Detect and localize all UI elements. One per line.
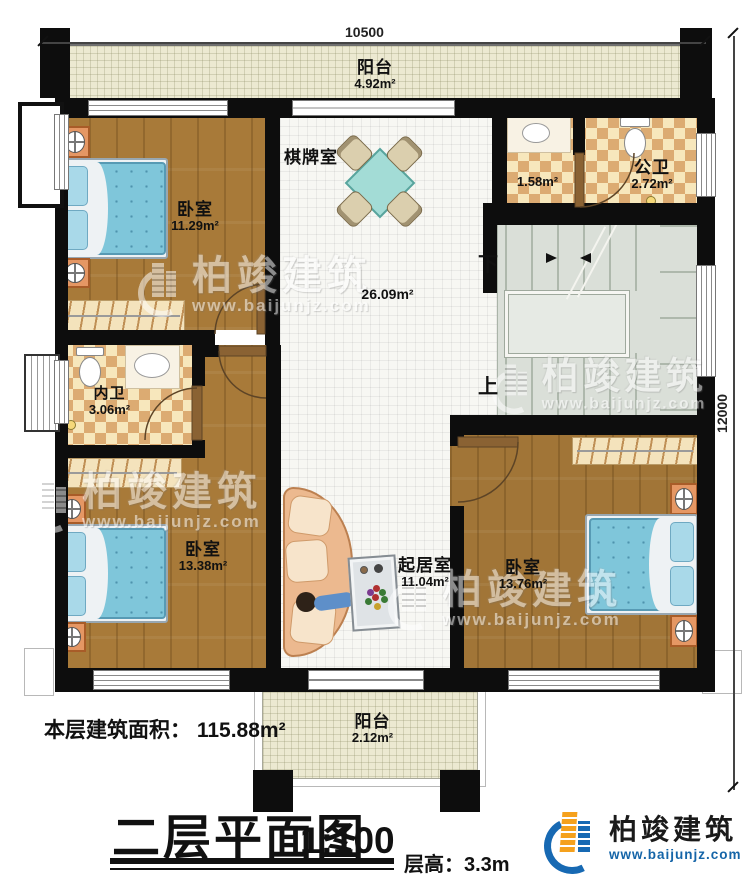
- room-area: 3.06m²: [72, 403, 147, 418]
- sofa-cushion: [285, 539, 330, 584]
- room-label-public-bathroom: 公卫 2.72m²: [612, 158, 692, 192]
- logo-url: www.baijunjz.com: [609, 847, 742, 862]
- wall: [265, 117, 280, 330]
- room-label-chess-room: 棋牌室: [284, 148, 338, 167]
- room-area: 11.04m²: [380, 575, 470, 590]
- wardrobe: [572, 437, 698, 465]
- stair-flight-lower: [505, 353, 660, 415]
- room-name: 棋牌室: [284, 148, 338, 167]
- room-name: 阳台: [330, 58, 420, 77]
- nightstand: [670, 483, 698, 515]
- stairs-up-label: 上: [478, 370, 498, 399]
- wall: [55, 445, 205, 458]
- dimension-line: [42, 42, 706, 44]
- pillow: [670, 522, 694, 562]
- drawing-scale: 1:100: [300, 820, 395, 862]
- wall: [450, 506, 464, 692]
- room-label-bedroom-bottom-left: 卧室 13.38m²: [158, 540, 248, 574]
- pillar: [440, 770, 480, 812]
- stair-direction-arrow: [546, 253, 557, 263]
- sliding-door: [292, 100, 455, 116]
- room-label-bedroom-top-left: 卧室 11.29m²: [150, 200, 240, 234]
- dimension-right: 12000: [714, 394, 730, 433]
- window: [54, 360, 69, 424]
- pillow: [670, 566, 694, 606]
- wall: [266, 345, 281, 692]
- room-label-hall-area: 26.09m²: [345, 287, 430, 303]
- sink-icon: [134, 353, 170, 378]
- window: [54, 114, 69, 190]
- toilet-icon: [79, 357, 101, 387]
- room-label-wash-area: 1.58m²: [500, 175, 575, 190]
- room-name: 阳台: [325, 712, 420, 731]
- window: [696, 133, 716, 197]
- floor-area-value: 115.88m²: [197, 719, 286, 742]
- bed-sheet-fold: [649, 518, 665, 611]
- floor-area-label: 本层建筑面积：: [44, 719, 191, 742]
- room-name: 卧室: [158, 540, 248, 559]
- toilet-tank: [620, 117, 650, 127]
- room-area: 2.72m²: [612, 177, 692, 192]
- logo-building-icon: [543, 808, 601, 868]
- room-area: 11.29m²: [150, 219, 240, 234]
- stairs-down-label: 下: [478, 248, 498, 277]
- room-area: 13.38m²: [158, 559, 248, 574]
- lamp-icon: [675, 488, 693, 510]
- stair-void-railing: [505, 291, 629, 357]
- wardrobe: [62, 458, 182, 488]
- flowers-icon: [372, 594, 379, 601]
- wall: [55, 330, 215, 345]
- room-area: 4.92m²: [330, 77, 420, 92]
- room-area: 1.58m²: [500, 175, 575, 190]
- title-underline: [110, 858, 394, 864]
- wall: [450, 415, 464, 446]
- room-name: 起居室: [380, 556, 470, 575]
- nightstand: [670, 615, 698, 647]
- window: [696, 265, 716, 377]
- room-name: 卧室: [478, 558, 568, 577]
- room-area: 13.76m²: [478, 577, 568, 592]
- dimension-top: 10500: [345, 24, 384, 40]
- stair-direction-arrow: [580, 253, 591, 263]
- room-label-private-bathroom: 内卫 3.06m²: [72, 386, 147, 417]
- dimension-line: [733, 36, 735, 790]
- window: [508, 670, 660, 690]
- stair-landing: [660, 225, 697, 415]
- company-logo: 柏竣建筑 www.baijunjz.com: [543, 808, 742, 868]
- floor-plan-page: 阳台 4.92m² 卧室 11.29m² 棋牌室 26.09m² 1.58m² …: [0, 0, 750, 884]
- room-name: 公卫: [612, 158, 692, 177]
- room-area: 26.09m²: [345, 287, 430, 303]
- room-name: 卧室: [150, 200, 240, 219]
- lamp-icon: [65, 263, 85, 283]
- room-label-bedroom-bottom-right: 卧室 13.76m²: [478, 558, 568, 592]
- lamp-icon: [675, 620, 693, 642]
- floor-area-note: 本层建筑面积： 115.88m²: [44, 714, 286, 744]
- wall: [450, 415, 715, 435]
- logo-brand: 柏竣建筑: [609, 814, 742, 846]
- toilet-icon: [624, 128, 646, 158]
- sliding-door: [308, 670, 424, 690]
- ground-line-left: [24, 648, 54, 696]
- window: [93, 670, 230, 690]
- wall: [205, 345, 219, 357]
- room-area: 2.12m²: [325, 731, 420, 746]
- room-name: 内卫: [72, 386, 147, 403]
- toilet-tank: [76, 347, 104, 356]
- wardrobe: [62, 300, 185, 331]
- sofa-cushion: [287, 494, 334, 537]
- room-label-living-room: 起居室 11.04m²: [380, 556, 470, 590]
- title-underline-thin: [110, 868, 394, 870]
- cup: [360, 566, 368, 574]
- sink-icon: [522, 123, 550, 143]
- wall: [192, 345, 205, 386]
- wall: [265, 330, 280, 345]
- room-label-balcony-bottom: 阳台 2.12m²: [325, 712, 420, 746]
- wall: [483, 203, 697, 225]
- floor-height: 层高：3.3m: [404, 848, 510, 877]
- wall: [492, 115, 507, 207]
- wall: [573, 117, 585, 155]
- room-label-balcony-top: 阳台 4.92m²: [330, 58, 420, 92]
- window: [88, 100, 228, 116]
